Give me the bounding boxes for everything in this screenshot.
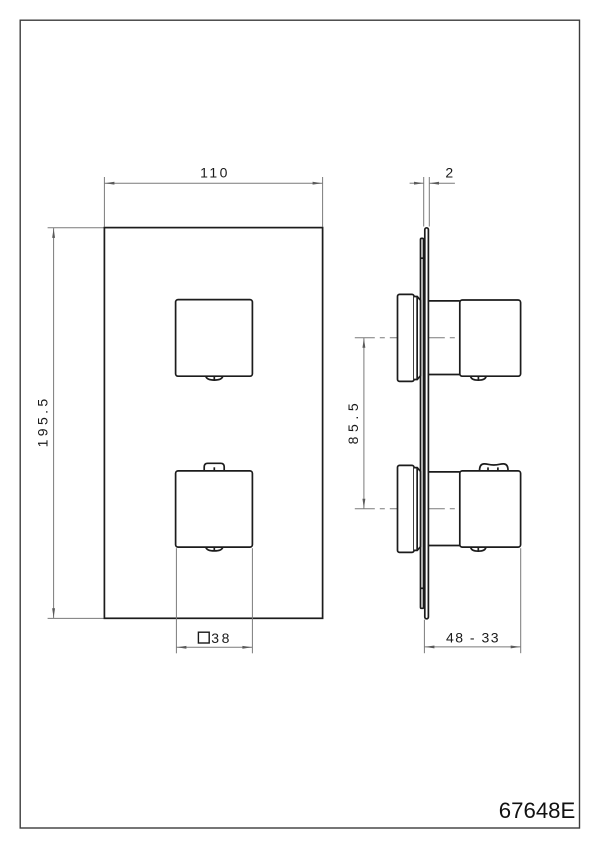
svg-text:67648E: 67648E [499, 798, 576, 823]
svg-text:48 - 33: 48 - 33 [446, 630, 500, 646]
svg-text:38: 38 [211, 630, 232, 646]
svg-text:195.5: 195.5 [34, 395, 50, 447]
svg-text:85.5: 85.5 [345, 399, 361, 445]
svg-text:110: 110 [200, 165, 230, 181]
svg-text:2: 2 [445, 165, 455, 181]
